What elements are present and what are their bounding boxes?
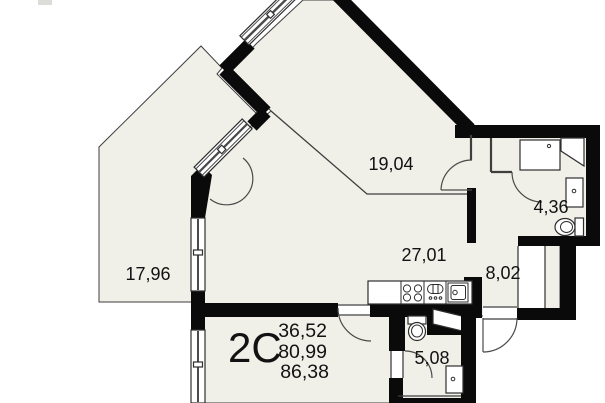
room-area-label: 19,04 (368, 154, 413, 174)
entrance-door-arc (483, 318, 517, 352)
wc-area-label: 5,08 (414, 348, 449, 368)
wc-sink-icon (446, 366, 463, 393)
cropped-label-fragment (38, 0, 52, 5)
washer-icon (520, 140, 560, 170)
total-area-value: 86,38 (280, 361, 329, 383)
balcony-area-label: 17,96 (125, 264, 170, 284)
floor-plan-drawing: 17,96 19,04 27,01 8,02 4,36 5,08 2C 36,5… (0, 0, 605, 403)
bathroom-area-label: 4,36 (533, 197, 568, 217)
window-left-lower (191, 330, 205, 403)
hallway-area-label: 8,02 (485, 263, 520, 283)
unit-type-label: 2C (228, 324, 282, 371)
apartment-area-value: 80,99 (278, 341, 327, 363)
sink-icon (566, 178, 583, 207)
kitchen-counter (368, 281, 472, 304)
floor-areas (99, 0, 597, 403)
floor-plan: 17,96 19,04 27,01 8,02 4,36 5,08 2C 36,5… (0, 0, 605, 403)
window-left-upper (191, 218, 205, 291)
wc-toilet-icon (408, 316, 426, 341)
living-area-value: 36,52 (278, 320, 327, 342)
kitchen-living-area-label: 27,01 (401, 245, 446, 265)
toilet-icon (555, 218, 584, 236)
